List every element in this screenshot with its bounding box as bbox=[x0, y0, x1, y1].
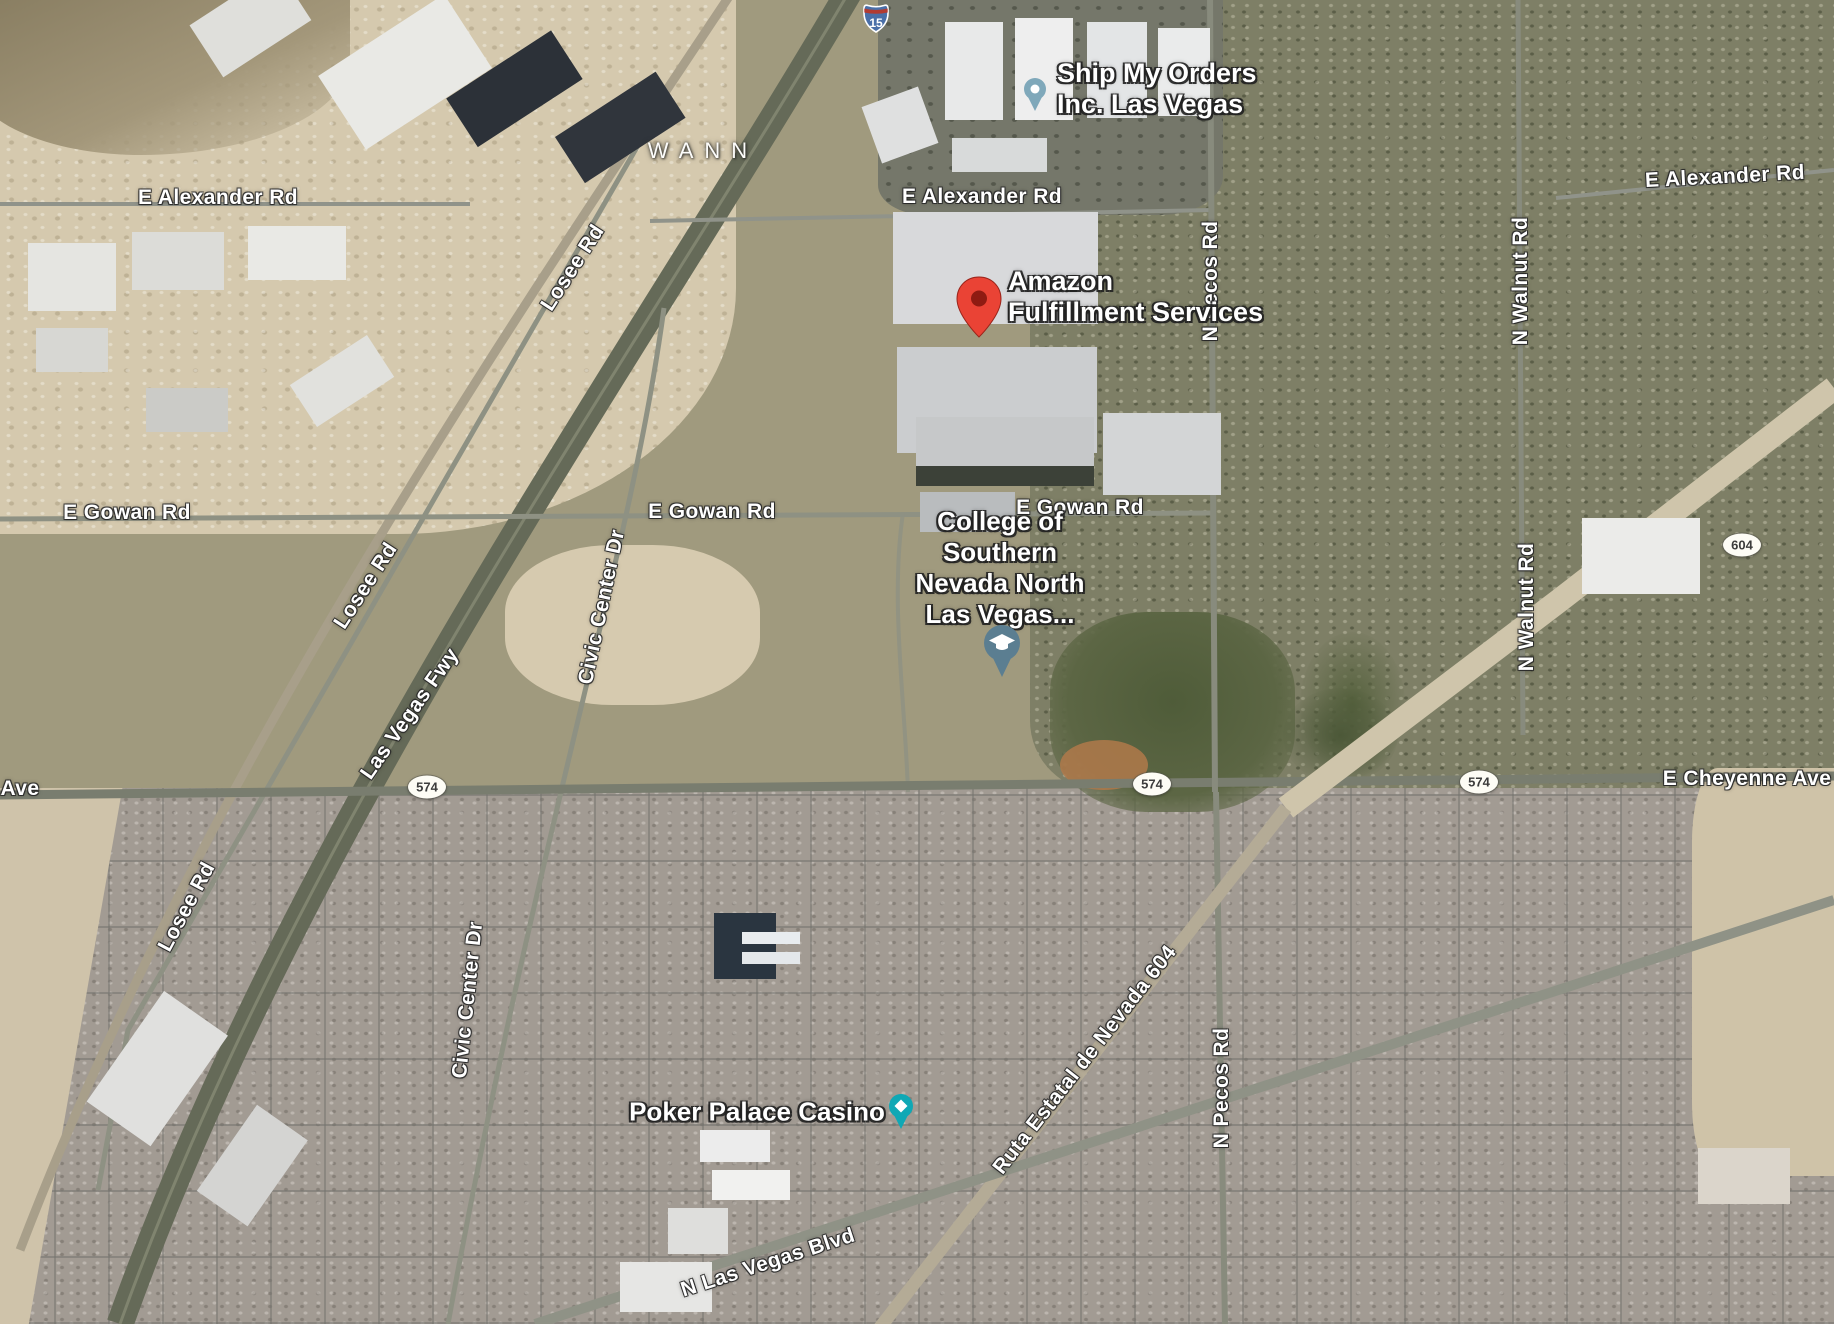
poi-label-line3: Nevada North bbox=[915, 568, 1084, 599]
shield-number: 604 bbox=[1731, 538, 1753, 553]
building bbox=[36, 328, 108, 372]
road-label-gowan-center: E Gowan Rd bbox=[648, 500, 776, 524]
road-label-cheyenne: E Cheyenne Ave bbox=[1663, 767, 1832, 791]
road-label-gowan-west: E Gowan Rd bbox=[63, 501, 191, 525]
shield-number: 574 bbox=[1141, 777, 1163, 792]
road-label-walnut-north: N Walnut Rd bbox=[1509, 217, 1533, 345]
interstate-15-shield: 15 bbox=[862, 2, 890, 33]
poi-label-poker-palace[interactable]: Poker Palace Casino bbox=[629, 1097, 885, 1128]
building bbox=[952, 138, 1047, 172]
poi-label-line1: Amazon bbox=[1008, 266, 1263, 297]
pin-dot bbox=[1031, 85, 1040, 94]
building-casino bbox=[700, 1130, 770, 1162]
area-label-wann: WANN bbox=[648, 138, 758, 164]
road-local-college bbox=[898, 513, 908, 792]
road-604-northeast bbox=[1286, 388, 1834, 808]
building-casino-2 bbox=[712, 1170, 790, 1200]
building bbox=[1698, 1148, 1790, 1204]
building bbox=[1103, 413, 1221, 495]
road-label-cheyenne-partial: Ave bbox=[1, 777, 40, 801]
shield-number: 15 bbox=[869, 16, 883, 30]
college-pin[interactable] bbox=[982, 624, 1022, 678]
building-college-shadow bbox=[916, 466, 1094, 486]
road-label-pecos-south: N Pecos Rd bbox=[1210, 1028, 1234, 1149]
route-574-shield-east: 574 bbox=[1460, 771, 1498, 794]
building bbox=[248, 226, 346, 280]
building bbox=[742, 932, 800, 944]
building bbox=[290, 335, 394, 427]
route-604-shield: 604 bbox=[1723, 534, 1761, 557]
building bbox=[668, 1208, 728, 1254]
shield-number: 574 bbox=[416, 780, 438, 795]
building bbox=[1582, 518, 1700, 594]
poi-label-line2: Southern bbox=[915, 537, 1084, 568]
building bbox=[742, 952, 800, 964]
road-label-alexander-center: E Alexander Rd bbox=[902, 185, 1062, 209]
casino-pin[interactable] bbox=[887, 1093, 915, 1130]
poi-label-csn-north[interactable]: College of Southern Nevada North Las Veg… bbox=[915, 506, 1084, 630]
pin-body bbox=[957, 277, 1001, 337]
amazon-location-pin[interactable] bbox=[956, 276, 1002, 338]
building-college bbox=[916, 417, 1094, 467]
road-label-walnut-mid: N Walnut Rd bbox=[1515, 543, 1539, 671]
route-574-shield-center: 574 bbox=[1133, 773, 1171, 796]
building bbox=[146, 388, 228, 432]
building bbox=[28, 243, 116, 311]
poi-label-line2: Inc. Las Vegas bbox=[1057, 89, 1257, 120]
road-label-alexander-west: E Alexander Rd bbox=[138, 186, 298, 210]
poi-label-line1: Ship My Orders bbox=[1057, 58, 1257, 89]
shield-number: 574 bbox=[1468, 775, 1490, 790]
poi-label-ship-my-orders[interactable]: Ship My Orders Inc. Las Vegas bbox=[1057, 58, 1257, 120]
pin-dot bbox=[971, 291, 987, 307]
parking-lot bbox=[714, 913, 776, 979]
ship-my-orders-pin[interactable] bbox=[1022, 77, 1048, 112]
poi-label-line2: Fulfillment Services bbox=[1008, 297, 1263, 328]
building bbox=[132, 232, 224, 290]
satellite-map-canvas[interactable]: 15 574 574 574 604 E Alexander Rd E Alex… bbox=[0, 0, 1834, 1324]
building bbox=[945, 22, 1003, 120]
route-574-shield-west: 574 bbox=[408, 776, 446, 799]
poi-label-line1: College of bbox=[915, 506, 1084, 537]
building bbox=[862, 87, 939, 164]
building bbox=[190, 0, 312, 77]
poi-label-amazon[interactable]: Amazon Fulfillment Services bbox=[1008, 266, 1263, 328]
